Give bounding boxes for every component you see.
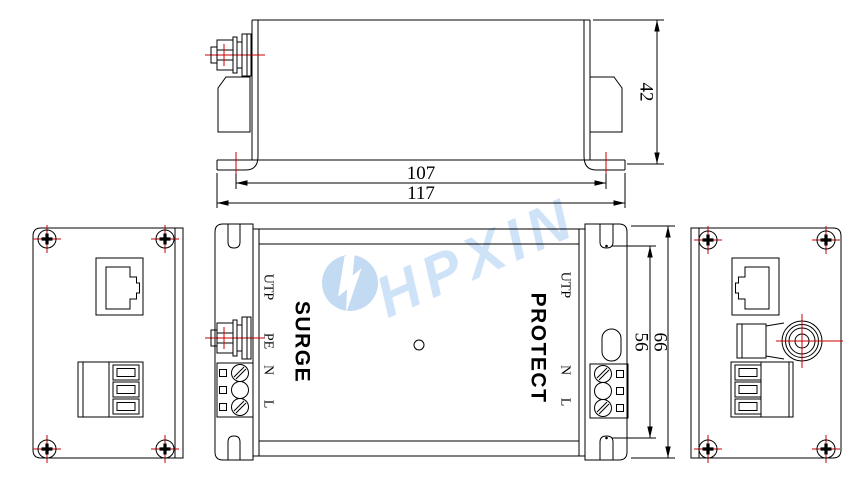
screw-icon xyxy=(694,226,722,254)
terminal-block-right-view xyxy=(731,362,793,417)
brand-text-protect: PROTECT xyxy=(527,293,550,404)
front-right-mounting-bracket xyxy=(585,224,627,460)
terminal-screw-icon xyxy=(232,399,249,416)
terminal-opening xyxy=(735,399,761,414)
surge-protector-drawing: HPXIN 107 117 xyxy=(0,0,846,478)
ring-lug-connector xyxy=(737,314,843,368)
dimension-56: 56 xyxy=(612,246,656,438)
left-panel-outline xyxy=(33,228,175,458)
terminal-opening xyxy=(113,365,139,380)
ground-bolt-top-icon xyxy=(205,34,265,76)
terminal-screw-icon xyxy=(232,365,249,382)
right-panel-edge-strip xyxy=(691,228,699,458)
screw-icon xyxy=(33,435,61,463)
front-right-terminal-block xyxy=(590,364,628,418)
dim-text-107: 107 xyxy=(407,163,436,184)
terminal-label-l-left: L xyxy=(261,400,276,409)
port-label-utp-left: UTP xyxy=(261,274,276,301)
screw-icon xyxy=(33,225,61,253)
terminal-label-n-right: N xyxy=(558,365,573,375)
terminal-opening xyxy=(735,382,761,397)
top-view-outline xyxy=(217,20,625,170)
dim-text-42: 42 xyxy=(636,83,657,102)
terminal-block-left-view xyxy=(78,362,143,417)
front-left-terminal-block xyxy=(217,363,253,417)
dim-text-66: 66 xyxy=(650,333,671,352)
right-side-view xyxy=(691,226,843,463)
terminal-hole xyxy=(232,382,249,399)
dim-text-56: 56 xyxy=(631,333,652,352)
terminal-screw-icon xyxy=(595,400,612,417)
right-panel-outline xyxy=(699,228,841,458)
terminal-opening xyxy=(113,382,139,397)
left-side-view xyxy=(33,225,183,463)
terminal-opening xyxy=(735,365,761,380)
bracket-slot-cutout xyxy=(602,329,621,361)
brand-text-surge: SURGE xyxy=(291,301,314,383)
terminal-label-l-right: L xyxy=(558,398,573,407)
screw-icon xyxy=(812,435,840,463)
screw-icon xyxy=(694,435,722,463)
watermark-brand-text: HPXIN xyxy=(367,185,587,331)
port-label-utp-right: UTP xyxy=(558,272,573,299)
dim-text-117: 117 xyxy=(407,183,435,204)
pilot-hole xyxy=(414,340,424,350)
left-bracket-profile xyxy=(218,77,250,132)
top-view: 107 117 42 xyxy=(205,20,664,208)
left-panel-edge-strip xyxy=(175,228,183,458)
terminal-hole xyxy=(595,383,612,400)
rj45-jack-right xyxy=(732,258,779,315)
ground-bolt-front-icon xyxy=(205,317,265,359)
technical-drawing-page: HPXIN 107 117 xyxy=(0,0,846,478)
right-bracket-profile xyxy=(590,77,622,132)
dimension-42: 42 xyxy=(593,20,664,164)
terminal-label-n-left: N xyxy=(261,365,276,375)
terminal-screw-icon xyxy=(595,366,612,383)
terminal-label-pe: PE xyxy=(261,333,276,349)
terminal-opening xyxy=(113,399,139,414)
rj45-jack-left xyxy=(96,258,143,315)
screw-icon xyxy=(812,226,840,254)
